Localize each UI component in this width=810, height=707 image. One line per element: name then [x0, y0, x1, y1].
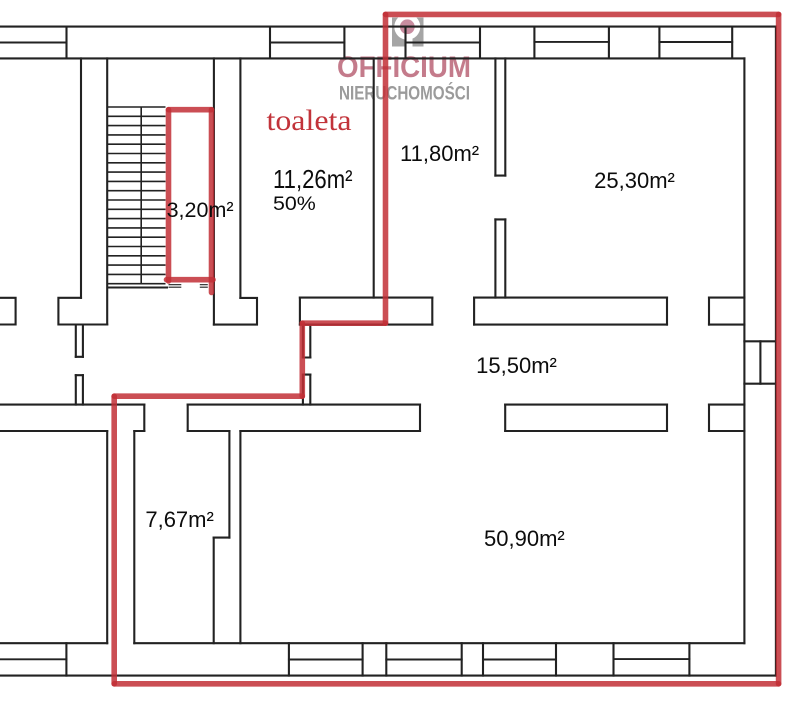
svg-text:15,50m²: 15,50m² [476, 353, 557, 378]
svg-text:11,80m²: 11,80m² [400, 141, 479, 166]
svg-text:50%: 50% [273, 194, 316, 215]
svg-text:7,67m²: 7,67m² [145, 507, 213, 532]
svg-text:NIERUCHOMOŚCI: NIERUCHOMOŚCI [339, 83, 470, 105]
svg-text:3,20m²: 3,20m² [167, 198, 234, 222]
svg-text:toaleta: toaleta [267, 104, 352, 137]
svg-text:11,26m²: 11,26m² [273, 164, 353, 194]
svg-text:OFFICIUM: OFFICIUM [337, 51, 471, 84]
svg-text:50,90m²: 50,90m² [484, 526, 565, 551]
svg-text:25,30m²: 25,30m² [594, 168, 675, 193]
